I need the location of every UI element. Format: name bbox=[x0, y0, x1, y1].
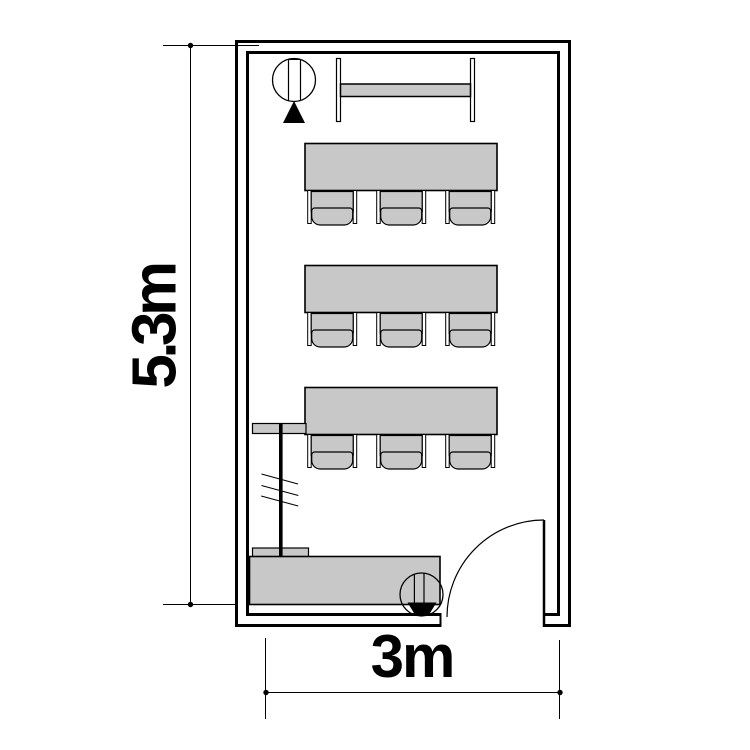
svg-text:5.3m: 5.3m bbox=[121, 264, 190, 389]
svg-text:3m: 3m bbox=[371, 623, 454, 690]
